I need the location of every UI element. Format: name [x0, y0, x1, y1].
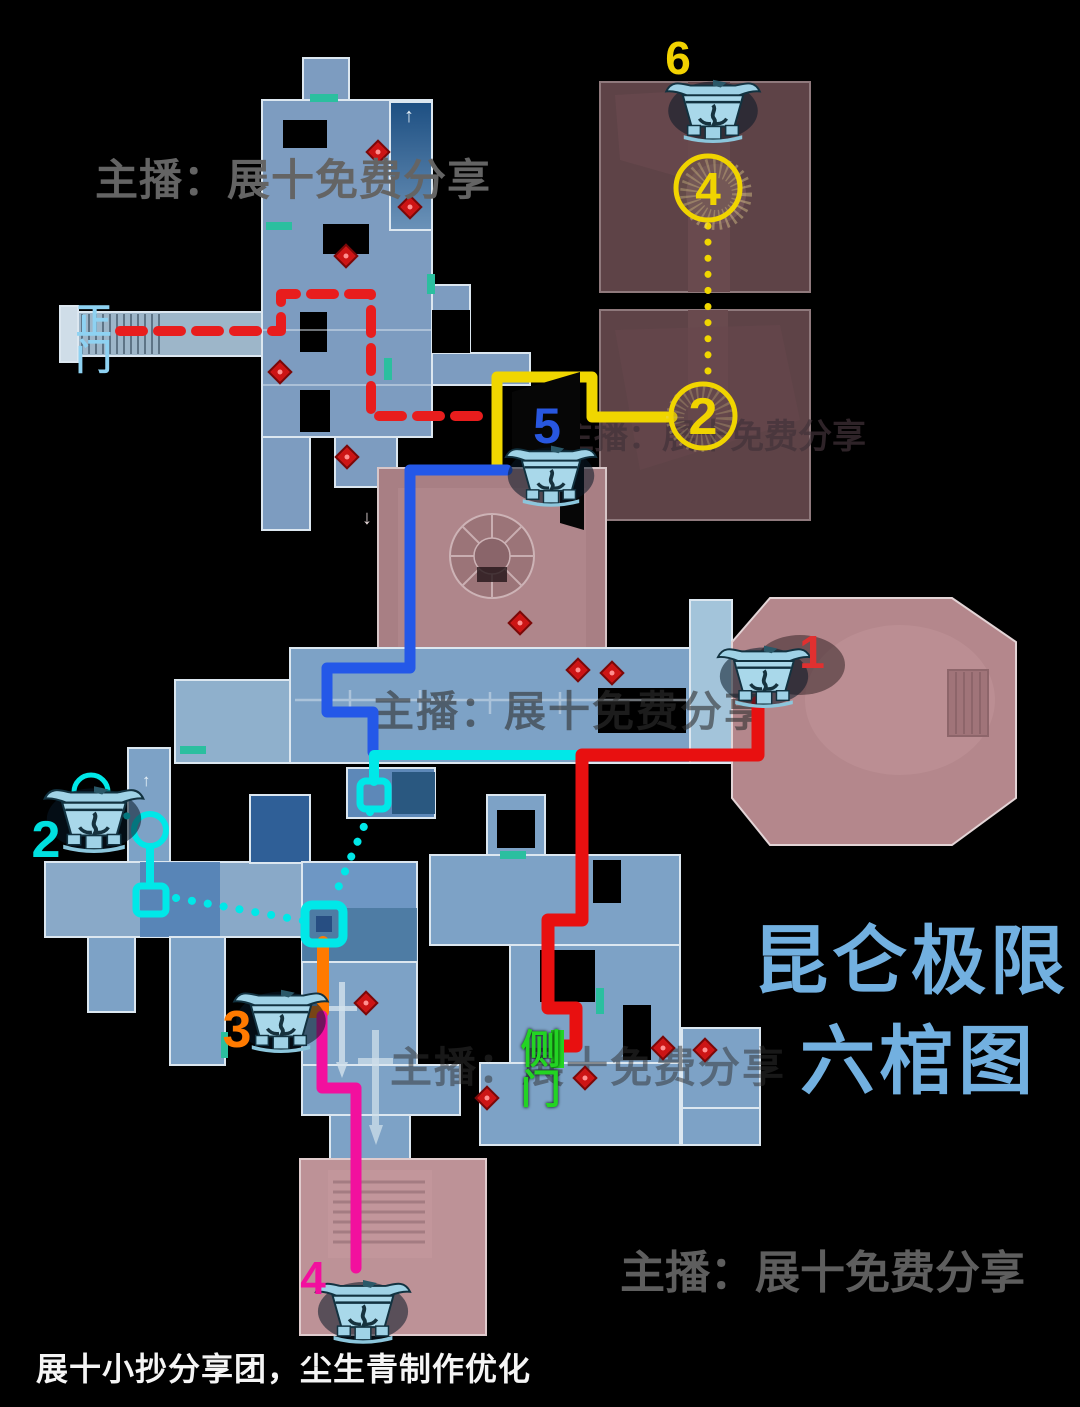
circle-number-2: 2 [689, 391, 718, 443]
coffin-number-2: 2 [32, 814, 61, 866]
map-canvas: ↑ ↑ ↓ 主播：展十免费分享 主播：展十免费分享 主播：展十免费分享 [0, 0, 1080, 1407]
map-title-line1: 昆仑极限 [753, 900, 1069, 1009]
coffin-number-6: 6 [665, 35, 691, 81]
coffin-number-1: 1 [799, 629, 825, 675]
watermark-top-left: 主播：展十免费分享 [95, 146, 491, 208]
coffin-number-3: 3 [223, 1004, 252, 1056]
coffin-number-5: 5 [533, 401, 561, 451]
room-side-gate-band [430, 855, 680, 945]
svg-text:↓: ↓ [362, 507, 372, 529]
map-title-line2: 六棺图 [800, 1000, 1037, 1109]
credit-line: 展十小抄分享团，尘生青制作优化 [36, 1344, 531, 1390]
watermark-mid-band: 主播：展十免费分享 [372, 688, 768, 735]
svg-text:↑: ↑ [142, 771, 151, 790]
side-gate-label: 侧门 [516, 1028, 557, 1108]
watermark-bottom-right: 主播：展十免费分享 [620, 1236, 1025, 1301]
circle-number-4: 4 [695, 166, 721, 212]
coffin-number-4: 4 [300, 1255, 326, 1301]
svg-text:↑: ↑ [404, 105, 414, 127]
main-gate-label: 正门 [72, 302, 109, 374]
cyan-square-marker-2-center [316, 916, 332, 932]
game-map-screenshot: ↑ ↑ ↓ 主播：展十免费分享 主播：展十免费分享 主播：展十免费分享 [0, 0, 1080, 1407]
